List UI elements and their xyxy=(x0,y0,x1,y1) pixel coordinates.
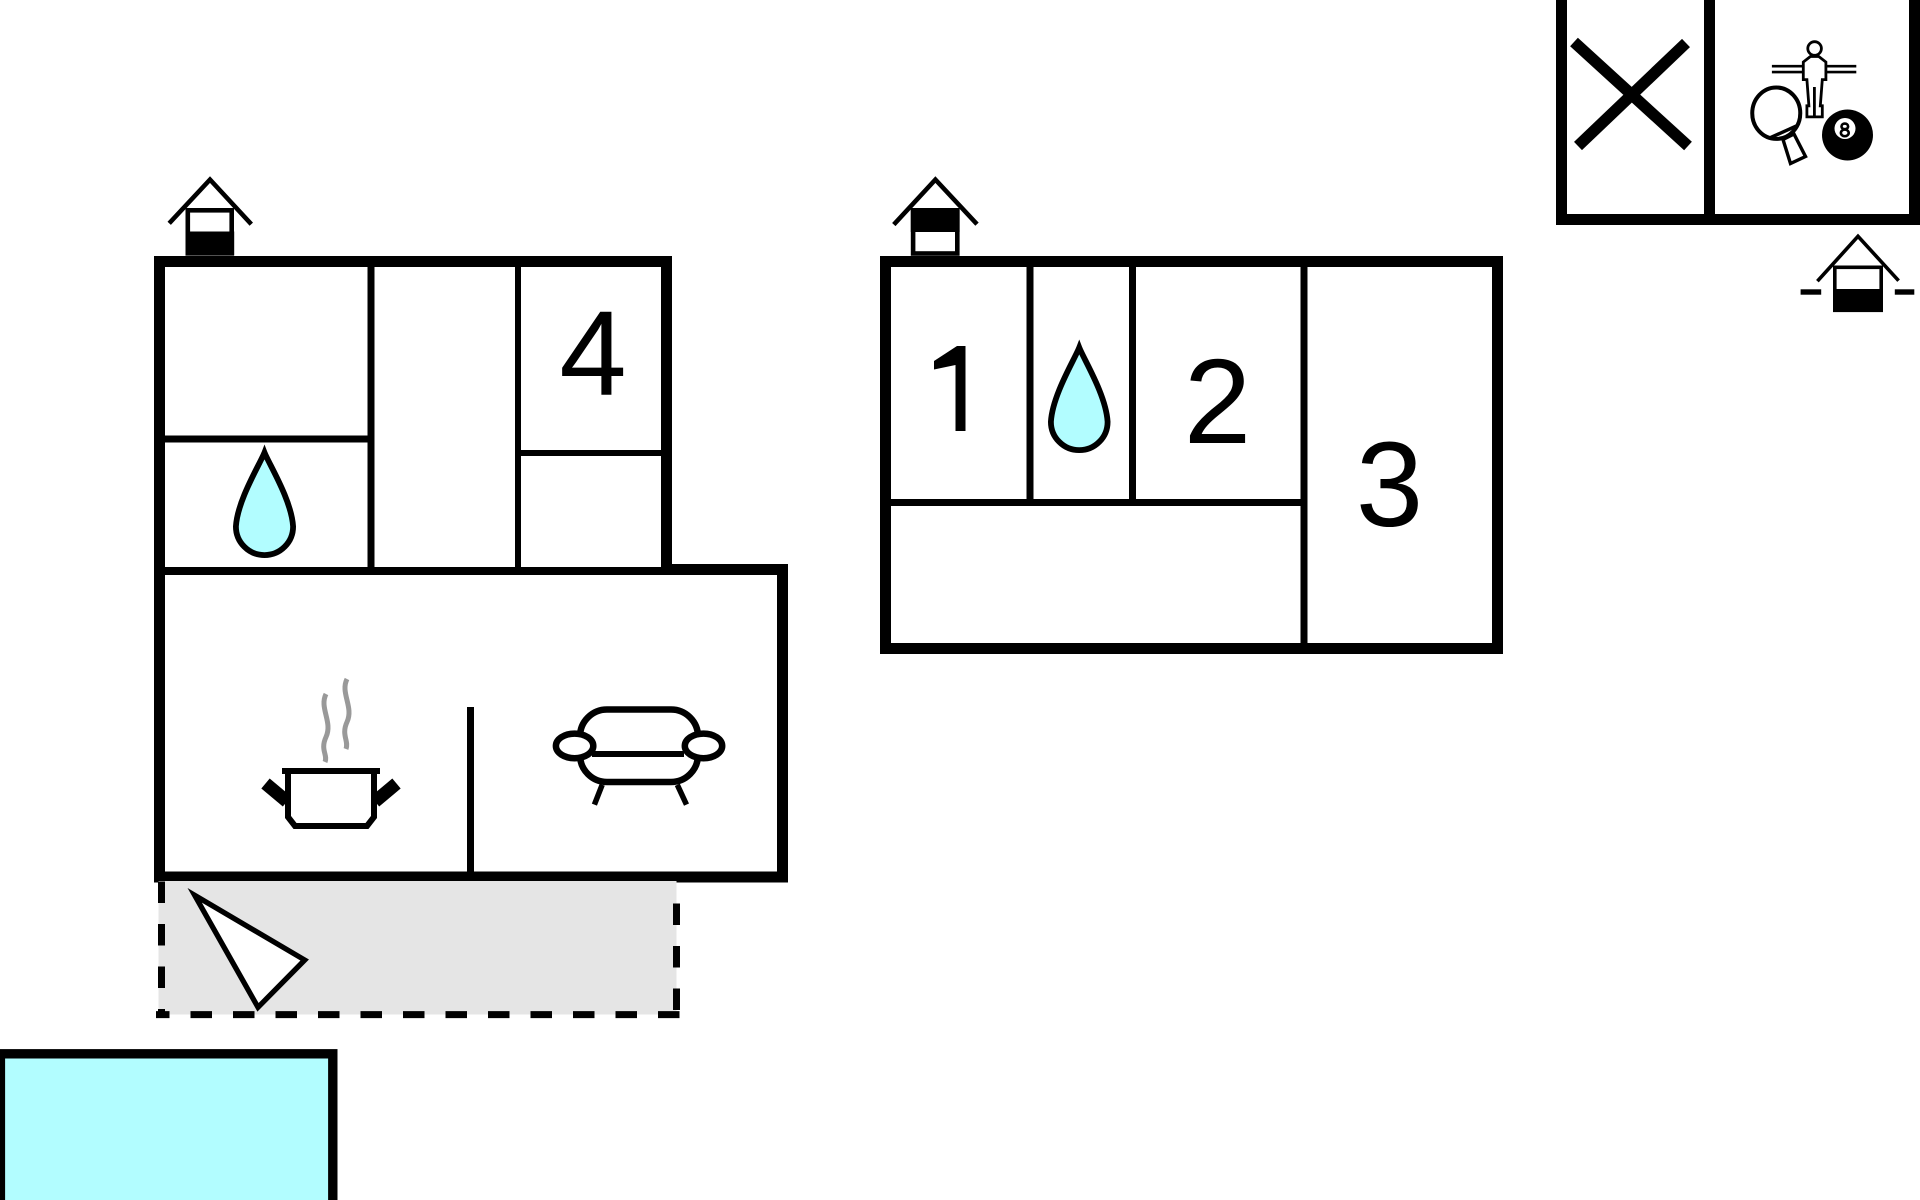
svg-text:3: 3 xyxy=(1356,416,1423,552)
svg-text:4: 4 xyxy=(559,285,626,421)
svg-text:2: 2 xyxy=(1184,333,1251,469)
